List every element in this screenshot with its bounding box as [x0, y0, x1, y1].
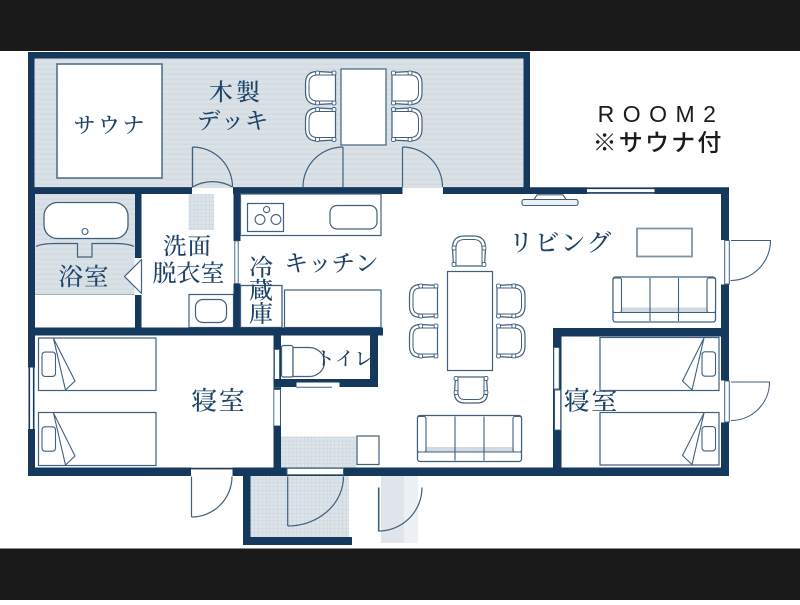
- svg-text:ROOM2: ROOM2: [598, 101, 725, 127]
